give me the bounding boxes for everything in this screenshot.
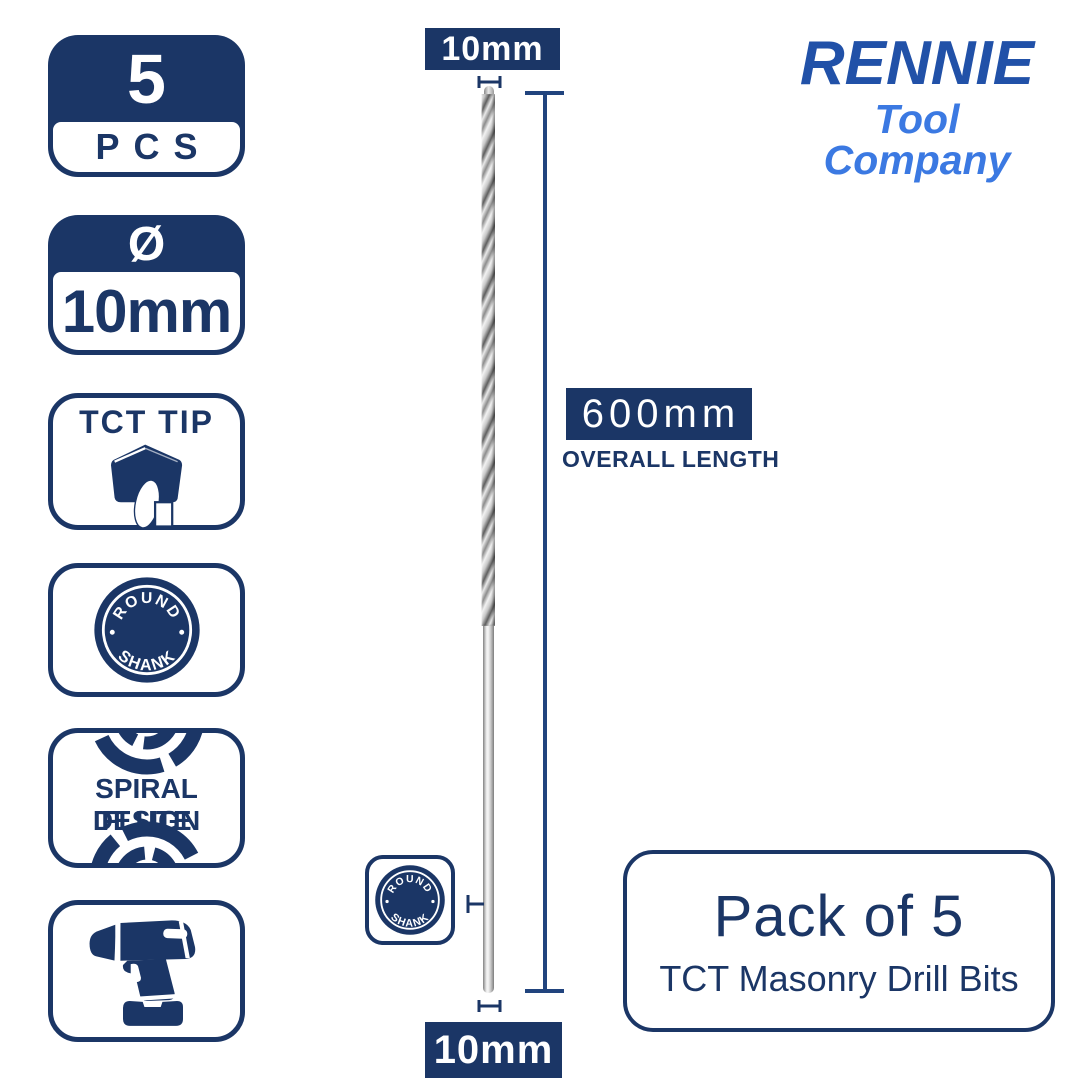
spiral-flute-badge: SPIRAL FLUTE DESIGN <box>48 728 245 868</box>
shank-pointer-icon <box>465 893 485 915</box>
diameter-symbol-icon: Ø <box>48 215 245 273</box>
pieces-badge: 5 PCS <box>48 35 245 177</box>
round-shank-mini-badge: ROUND SHANK <box>365 855 455 945</box>
overall-length-value: 600mm <box>566 388 752 440</box>
round-shank-mini-stamp-icon: ROUND SHANK <box>373 863 447 937</box>
dimension-cap-bottom <box>525 989 564 993</box>
diameter-label-bottom: 10mm <box>425 1022 562 1078</box>
dimension-cap-top <box>525 91 564 95</box>
width-bracket-bottom-icon <box>477 999 502 1013</box>
product-subtitle: TCT Masonry Drill Bits <box>659 958 1018 1000</box>
brand-logo: RENNIE Tool Company <box>783 33 1051 181</box>
round-shank-badge: ROUND SHANK <box>48 563 245 697</box>
tct-tip-badge: TCT TIP <box>48 393 245 530</box>
power-drill-icon <box>80 911 214 1031</box>
diameter-label-top: 10mm <box>425 28 560 70</box>
product-infographic: 5 PCS Ø 10mm TCT TIP ROUND <box>0 0 1081 1081</box>
length-dimension-line <box>543 91 547 993</box>
drill-bit-flute <box>481 94 495 626</box>
tct-tip-icon <box>84 441 210 531</box>
round-shank-stamp-icon: ROUND SHANK <box>91 574 203 686</box>
spiral-flute-line2: DESIGN <box>53 805 240 837</box>
drill-bit-shank <box>483 626 494 993</box>
pieces-label: PCS <box>53 122 240 172</box>
diameter-badge: Ø 10mm <box>48 215 245 355</box>
brand-tagline: Tool Company <box>783 99 1051 181</box>
power-drill-badge <box>48 900 245 1042</box>
diameter-value: 10mm <box>53 272 240 350</box>
brand-name: RENNIE <box>783 33 1051 95</box>
pieces-count: 5 <box>48 35 245 123</box>
product-description-box: Pack of 5 TCT Masonry Drill Bits <box>623 850 1055 1032</box>
tct-tip-label: TCT TIP <box>53 404 240 441</box>
overall-length-callout: 600mm OVERALL LENGTH <box>566 388 752 473</box>
overall-length-label: OVERALL LENGTH <box>562 446 752 473</box>
product-title: Pack of 5 <box>714 883 965 950</box>
